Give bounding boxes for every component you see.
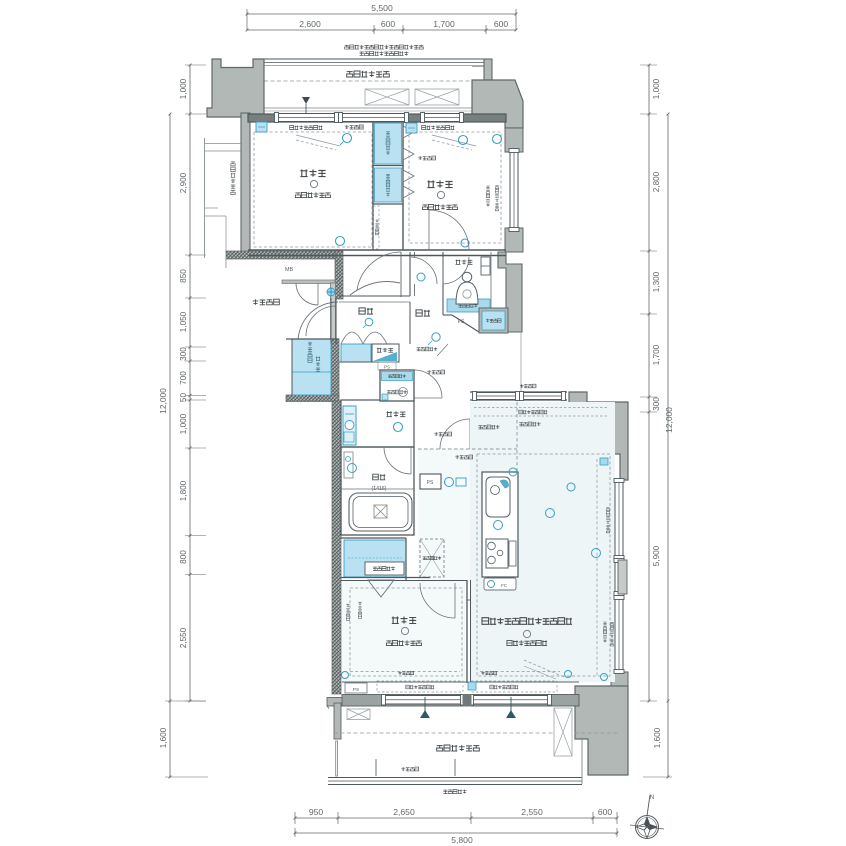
svg-text:700: 700 (179, 371, 188, 385)
svg-text:50: 50 (179, 393, 188, 403)
svg-text:2,600: 2,600 (299, 19, 321, 29)
svg-text:PS: PS (427, 480, 434, 486)
svg-text:1,700: 1,700 (652, 344, 661, 365)
svg-text:600: 600 (494, 19, 509, 29)
svg-text:1,600: 1,600 (159, 727, 168, 748)
svg-text:12,000: 12,000 (664, 407, 674, 433)
svg-text:1,000: 1,000 (179, 78, 188, 99)
svg-text:2,800: 2,800 (652, 171, 661, 192)
svg-text:600: 600 (381, 19, 396, 29)
svg-text:1,000: 1,000 (652, 78, 661, 99)
svg-text:600: 600 (598, 807, 613, 817)
svg-text:1,000: 1,000 (179, 413, 188, 434)
svg-text:5,800: 5,800 (451, 835, 473, 845)
svg-text:MB: MB (285, 267, 293, 273)
svg-text:2,900: 2,900 (179, 172, 188, 193)
svg-text:PS: PS (384, 365, 390, 370)
svg-text:1,050: 1,050 (179, 311, 188, 332)
svg-text:850: 850 (179, 269, 188, 283)
svg-text:5,500: 5,500 (371, 3, 393, 13)
svg-text:950: 950 (309, 807, 324, 817)
svg-text:1,600: 1,600 (653, 727, 662, 748)
svg-text:PS: PS (458, 319, 465, 325)
svg-text:1,700: 1,700 (433, 19, 455, 29)
svg-text:800: 800 (179, 550, 188, 564)
svg-text:2,550: 2,550 (521, 807, 543, 817)
svg-text:1,300: 1,300 (652, 271, 661, 292)
svg-text:1,800: 1,800 (179, 480, 188, 501)
svg-text:N: N (650, 795, 654, 801)
svg-text:2,550: 2,550 (179, 627, 188, 648)
svg-text:5,900: 5,900 (652, 545, 661, 566)
svg-text:12,000: 12,000 (158, 388, 168, 414)
svg-text:PS: PS (353, 687, 359, 693)
svg-text:2,650: 2,650 (393, 807, 415, 817)
svg-text:300: 300 (652, 397, 661, 411)
svg-text:300: 300 (179, 347, 188, 361)
svg-text:FC: FC (501, 583, 508, 588)
